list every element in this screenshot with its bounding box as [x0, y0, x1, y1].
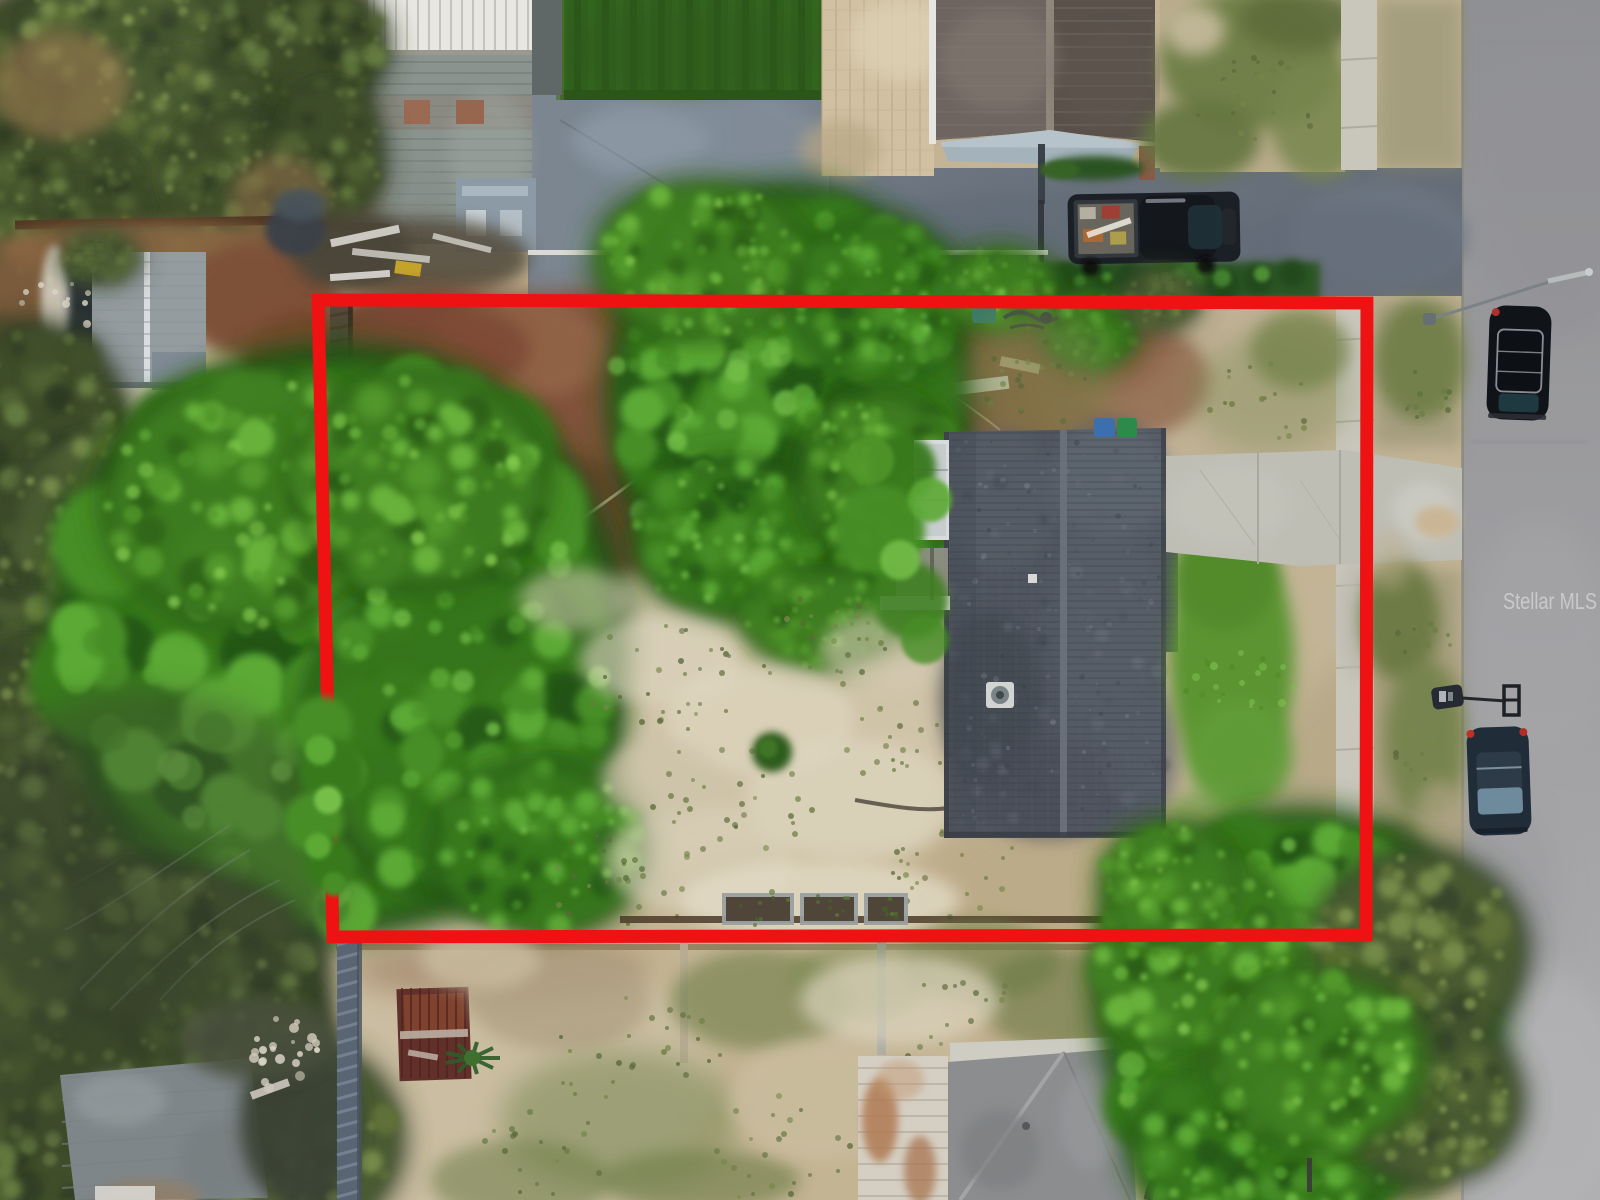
svg-text:Stellar MLS: Stellar MLS: [1503, 588, 1597, 614]
